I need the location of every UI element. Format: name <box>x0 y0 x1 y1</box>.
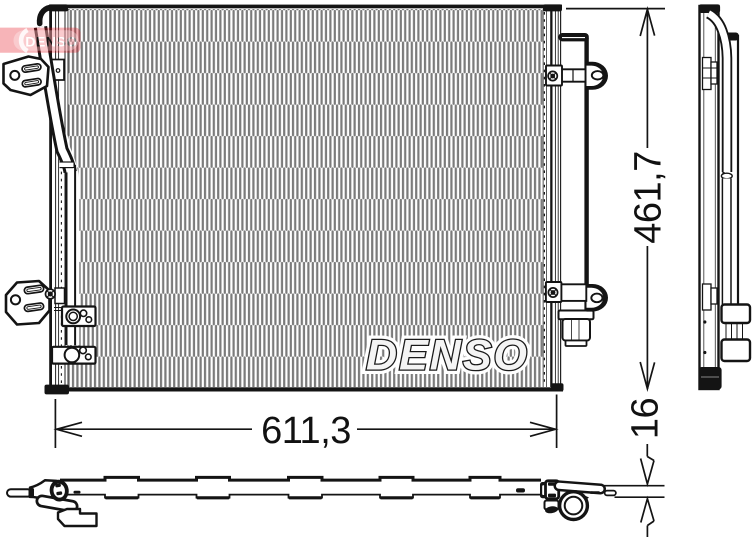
svg-text:DENSO: DENSO <box>366 332 529 380</box>
svg-text:461,7: 461,7 <box>628 151 670 244</box>
svg-text:611,3: 611,3 <box>261 410 351 452</box>
svg-text:16: 16 <box>625 398 667 439</box>
